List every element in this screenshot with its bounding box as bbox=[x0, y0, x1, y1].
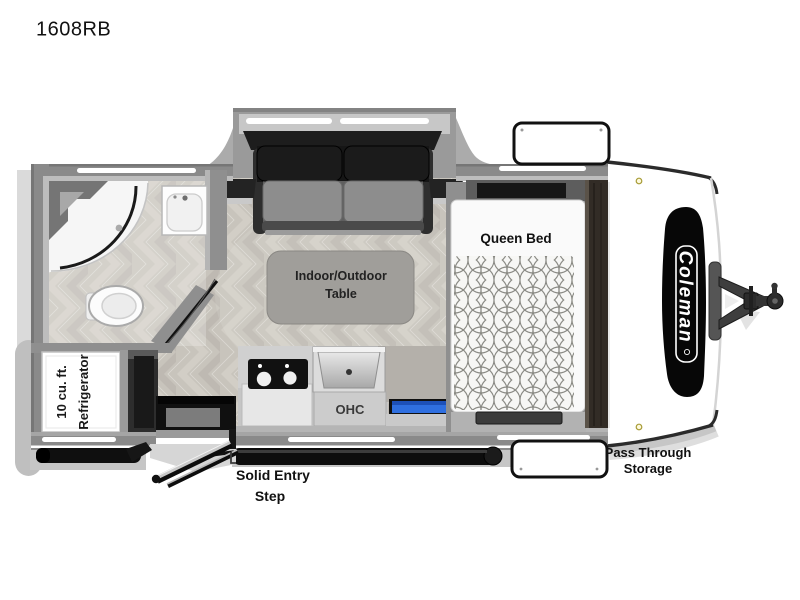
svg-text:Refrigerator: Refrigerator bbox=[76, 354, 91, 429]
svg-text:Storage: Storage bbox=[624, 461, 672, 476]
svg-text:Step: Step bbox=[255, 488, 285, 504]
svg-text:Coleman: Coleman bbox=[675, 251, 696, 344]
svg-text:Table: Table bbox=[325, 287, 357, 301]
svg-text:1608RB: 1608RB bbox=[36, 19, 111, 41]
svg-text:Solid Entry: Solid Entry bbox=[236, 467, 310, 483]
svg-text:10 cu. ft.: 10 cu. ft. bbox=[54, 365, 69, 419]
svg-text:Pass Through: Pass Through bbox=[605, 445, 692, 460]
svg-text:OHC: OHC bbox=[336, 402, 366, 417]
svg-text:Indoor/Outdoor: Indoor/Outdoor bbox=[295, 269, 387, 283]
svg-text:Queen Bed: Queen Bed bbox=[480, 231, 551, 246]
